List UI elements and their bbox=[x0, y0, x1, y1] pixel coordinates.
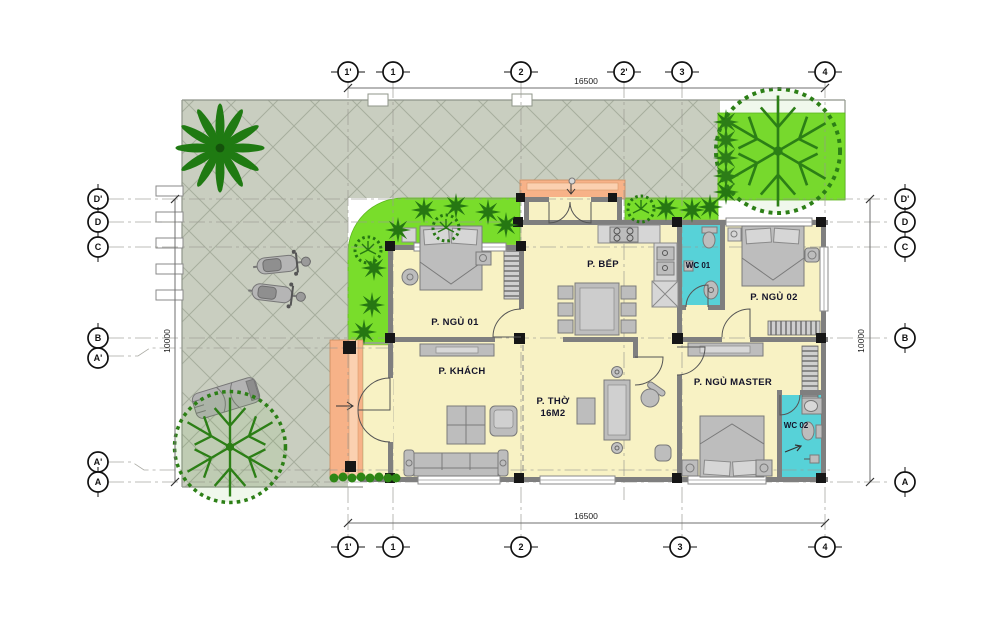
grid-marker-top-2: 2 bbox=[504, 62, 538, 82]
grid-marker-bottom-1p: 1' bbox=[331, 537, 365, 557]
bed-master bbox=[700, 416, 764, 477]
grid-marker-right-c: C bbox=[895, 232, 915, 262]
gate-leaves bbox=[156, 186, 183, 300]
dining-table bbox=[558, 283, 636, 335]
grid-marker-bottom-1: 1 bbox=[376, 537, 410, 557]
tree-bottom-left bbox=[175, 392, 286, 503]
stool-bedroom2 bbox=[805, 248, 819, 262]
grid-marker-bottom-4: 4 bbox=[808, 537, 842, 557]
svg-text:1': 1' bbox=[344, 542, 351, 552]
svg-text:C: C bbox=[902, 242, 909, 252]
floor-plan-canvas: 16500 16500 10000 10000 1' 1 2 2' 3 4 1'… bbox=[0, 0, 1000, 632]
stool-bedroom1 bbox=[402, 269, 418, 285]
svg-text:C: C bbox=[95, 242, 102, 252]
room-label-wc1: WC 01 bbox=[686, 261, 711, 270]
dim-bottom: 16500 bbox=[574, 511, 598, 521]
svg-text:3: 3 bbox=[677, 542, 682, 552]
svg-text:D: D bbox=[95, 217, 102, 227]
svg-text:4: 4 bbox=[822, 542, 827, 552]
svg-text:A': A' bbox=[94, 353, 103, 363]
grid-marker-bottom-3: 3 bbox=[663, 537, 697, 557]
grid-marker-left-a: A bbox=[88, 467, 108, 497]
grid-marker-top-3: 3 bbox=[665, 62, 699, 82]
tree-top-right bbox=[716, 89, 840, 213]
room-label-worship-area: 16M2 bbox=[541, 408, 566, 419]
dim-right: 10000 bbox=[856, 329, 866, 353]
grid-marker-right-b: B bbox=[895, 323, 915, 353]
svg-text:D: D bbox=[902, 217, 909, 227]
tv-console-living bbox=[420, 344, 494, 356]
svg-text:A': A' bbox=[94, 457, 103, 467]
grid-marker-top-4: 4 bbox=[808, 62, 842, 82]
svg-text:1: 1 bbox=[390, 67, 395, 77]
dim-left: 10000 bbox=[162, 329, 172, 353]
grid-marker-top-2p: 2' bbox=[607, 62, 641, 82]
room-label-wc2: WC 02 bbox=[784, 421, 809, 430]
room-label-kitchen: P. BẾP bbox=[587, 259, 619, 270]
wardrobe-master bbox=[688, 343, 763, 356]
sofa-living bbox=[404, 450, 508, 476]
svg-text:A: A bbox=[95, 477, 102, 487]
svg-text:1': 1' bbox=[344, 67, 351, 77]
room-label-master: P. NGỦ MASTER bbox=[694, 376, 772, 388]
svg-text:3: 3 bbox=[679, 67, 684, 77]
armchair-living bbox=[490, 406, 517, 436]
svg-text:2: 2 bbox=[518, 67, 523, 77]
svg-text:B: B bbox=[902, 333, 909, 343]
coffee-table-living bbox=[447, 406, 485, 444]
dim-top: 16500 bbox=[574, 76, 598, 86]
room-label-living: P. KHÁCH bbox=[438, 366, 485, 377]
svg-text:2': 2' bbox=[620, 67, 627, 77]
side-table-hall bbox=[655, 445, 671, 461]
room-label-bedroom1: P. NGỦ 01 bbox=[431, 316, 479, 328]
svg-text:D': D' bbox=[94, 194, 103, 204]
grid-marker-right-a: A bbox=[895, 467, 915, 497]
svg-text:A: A bbox=[902, 477, 909, 487]
grid-marker-top-1: 1 bbox=[376, 62, 410, 82]
svg-text:B: B bbox=[95, 333, 102, 343]
room-label-worship: P. THỜ bbox=[537, 395, 571, 407]
floor-plan-drawing: 16500 16500 10000 10000 1' 1 2 2' 3 4 1'… bbox=[0, 0, 1000, 632]
room-label-bedroom2: P. NGỦ 02 bbox=[750, 291, 797, 303]
svg-text:2: 2 bbox=[518, 542, 523, 552]
svg-text:4: 4 bbox=[822, 67, 827, 77]
dresser-bedroom1 bbox=[476, 252, 491, 265]
svg-text:1: 1 bbox=[390, 542, 395, 552]
grid-marker-bottom-2: 2 bbox=[504, 537, 538, 557]
grid-marker-top-1p: 1' bbox=[331, 62, 365, 82]
grid-marker-left-ap1: A' bbox=[88, 348, 108, 368]
grid-marker-left-c: C bbox=[88, 232, 108, 262]
svg-text:D': D' bbox=[901, 194, 910, 204]
